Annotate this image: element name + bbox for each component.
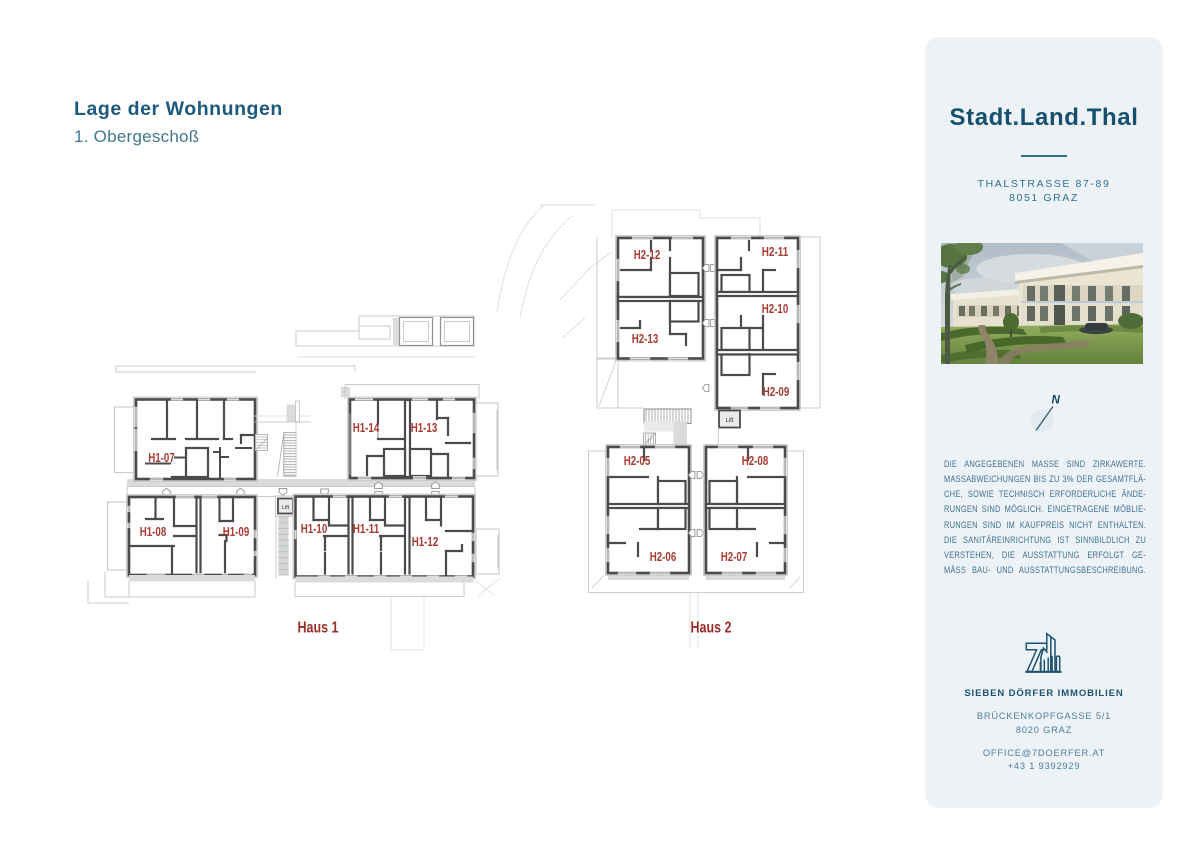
svg-text:H2-05: H2-05: [624, 454, 651, 468]
svg-text:H2-07: H2-07: [721, 550, 748, 564]
svg-text:H2-09: H2-09: [763, 385, 790, 399]
svg-text:N: N: [1052, 395, 1061, 407]
svg-text:Haus 1: Haus 1: [298, 620, 339, 637]
svg-text:H2-11: H2-11: [762, 245, 789, 259]
svg-text:H2-06: H2-06: [650, 550, 677, 564]
svg-text:H1-14: H1-14: [353, 421, 380, 435]
svg-text:H1-07: H1-07: [148, 451, 175, 465]
svg-text:Lift: Lift: [282, 505, 290, 511]
svg-text:Lift: Lift: [725, 418, 733, 424]
svg-text:H2-13: H2-13: [632, 332, 659, 346]
svg-text:H1-13: H1-13: [411, 421, 438, 435]
svg-text:H1-11: H1-11: [353, 522, 380, 536]
svg-text:H2-08: H2-08: [742, 454, 769, 468]
svg-text:H2-10: H2-10: [762, 302, 789, 316]
svg-text:Haus 2: Haus 2: [691, 620, 732, 637]
svg-text:H1-12: H1-12: [412, 535, 439, 549]
svg-text:H2-12: H2-12: [634, 248, 661, 262]
svg-text:H1-09: H1-09: [223, 525, 250, 539]
svg-text:H1-08: H1-08: [140, 525, 167, 539]
svg-text:H1-10: H1-10: [301, 522, 328, 536]
